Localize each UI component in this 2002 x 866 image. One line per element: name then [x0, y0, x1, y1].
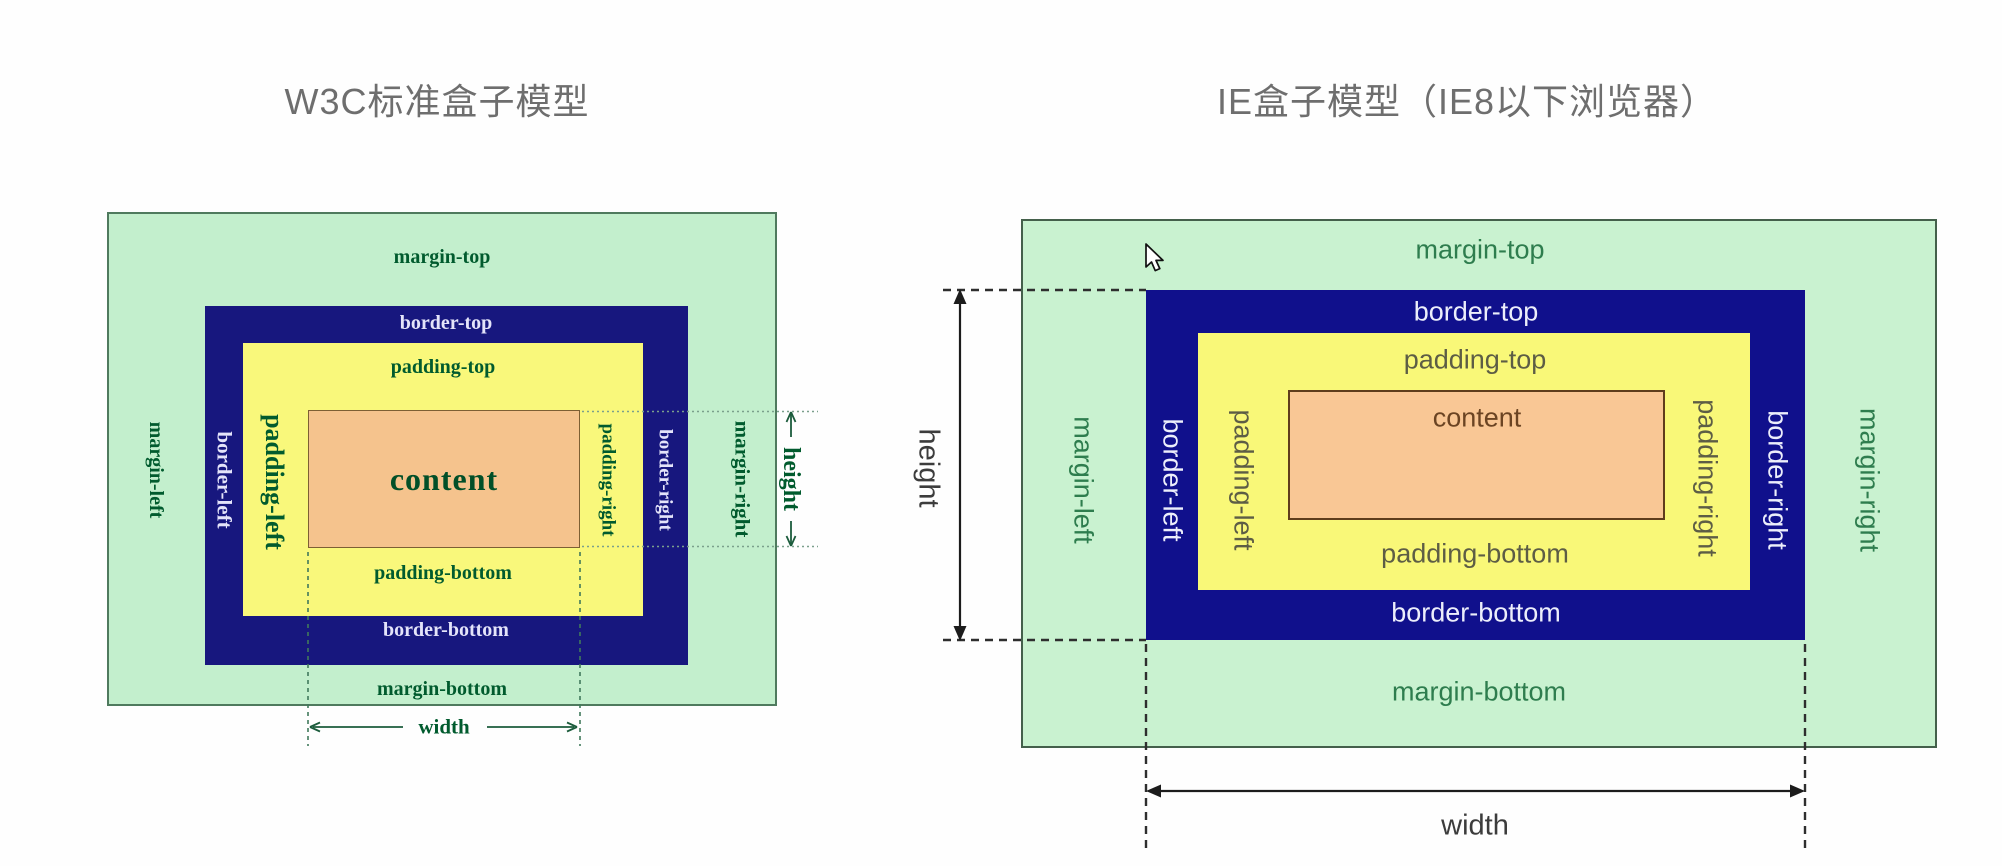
w3c-width-label: width [418, 717, 469, 738]
ie-height-label: height [914, 428, 943, 507]
w3c-height-label: height [779, 447, 803, 511]
w3c-margin-right-label: margin-right [732, 421, 753, 538]
ie-border-top-label: border-top [1414, 299, 1539, 326]
w3c-margin-left-label: margin-left [146, 422, 166, 519]
w3c-margin-bottom-label: margin-bottom [377, 679, 507, 699]
ie-border-left-label: border-left [1159, 418, 1186, 541]
ie-padding-top-label: padding-top [1404, 347, 1547, 374]
ie-width-label: width [1441, 812, 1509, 841]
w3c-border-top-label: border-top [400, 313, 493, 333]
w3c-padding-right-label: padding-right [599, 424, 618, 537]
ie-border-bottom-label: border-bottom [1391, 600, 1561, 627]
w3c-diagram-title: W3C标准盒子模型 [285, 84, 590, 120]
ie-margin-left-label: margin-left [1070, 416, 1097, 544]
ie-padding-left-label: padding-left [1230, 409, 1257, 550]
box-model-comparison-slide: W3C标准盒子模型 IE盒子模型（IE8以下浏览器） margin-top bo… [0, 0, 2002, 866]
w3c-border-bottom-label: border-bottom [383, 620, 509, 640]
ie-diagram-title: IE盒子模型（IE8以下浏览器） [1217, 84, 1717, 120]
ie-border-right-label: border-right [1764, 410, 1791, 550]
ie-padding-right-label: padding-right [1694, 399, 1721, 557]
w3c-padding-top-label: padding-top [391, 357, 496, 377]
w3c-padding-left-label: padding-left [261, 414, 287, 550]
ie-margin-bottom-label: margin-bottom [1392, 679, 1566, 706]
ie-margin-right-label: margin-right [1856, 408, 1883, 552]
w3c-border-left-label: border-left [214, 431, 235, 528]
w3c-padding-bottom-label: padding-bottom [374, 563, 512, 583]
ie-height-arrow [954, 289, 967, 641]
ie-width-arrow [1146, 785, 1805, 798]
ie-content-label: content [1433, 405, 1522, 432]
w3c-content-label: content [390, 463, 498, 495]
w3c-border-right-label: border-right [656, 429, 675, 531]
w3c-margin-top-label: margin-top [394, 247, 491, 267]
ie-margin-top-label: margin-top [1415, 237, 1544, 264]
ie-padding-bottom-label: padding-bottom [1381, 541, 1569, 568]
